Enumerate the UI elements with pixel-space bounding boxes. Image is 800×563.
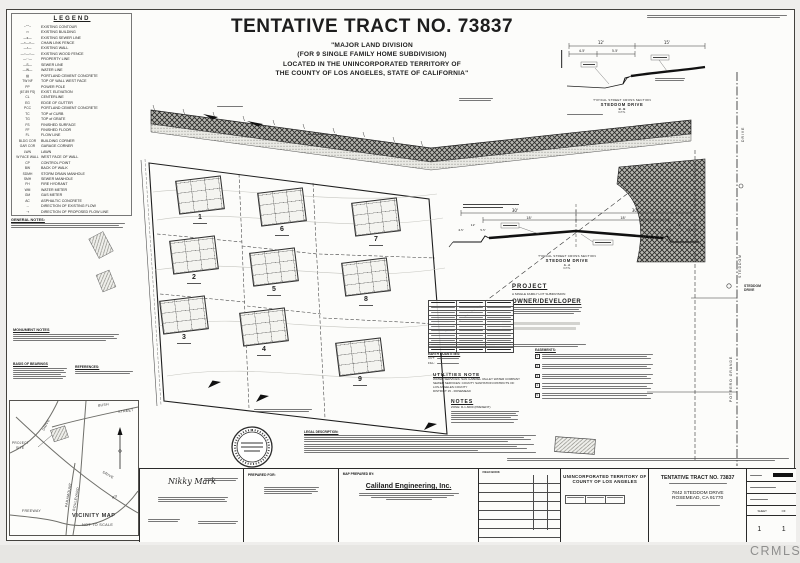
table-header-cell xyxy=(429,301,456,306)
illegible-text xyxy=(542,354,654,360)
building-footprint xyxy=(257,187,307,226)
lot-area-illegible xyxy=(353,385,367,386)
cross-section-b-caption: TYPICAL STREET CROSS SECTION STEDDOM DRI… xyxy=(557,98,687,114)
illegible-text xyxy=(386,499,432,500)
illegible-line xyxy=(11,223,125,224)
table-cell xyxy=(429,316,456,320)
table-body xyxy=(429,306,513,347)
illegible-line xyxy=(11,225,119,226)
illegible-line xyxy=(459,335,483,336)
table-cell xyxy=(429,330,456,334)
svg-text:18': 18' xyxy=(620,216,625,220)
street-label-drive: DRIVE xyxy=(741,127,745,142)
illegible-text xyxy=(750,499,768,500)
illegible-line xyxy=(542,366,648,367)
subtitle-line: LOCATED IN THE UNINCORPORATED TERRITORY … xyxy=(197,60,547,69)
illegible-line xyxy=(451,413,516,414)
illegible-line xyxy=(431,349,455,350)
subtitle-line: (FOR 9 SINGLE FAMILY HOME SUBDIVISION) xyxy=(197,50,547,59)
illegible-line xyxy=(13,374,61,375)
illegible-line xyxy=(254,411,309,412)
illegible-text xyxy=(567,114,603,116)
table-cell xyxy=(456,307,484,311)
table-row xyxy=(429,306,513,311)
lot-area-illegible xyxy=(187,283,201,284)
building-footprint xyxy=(335,337,385,376)
illegible-line xyxy=(451,419,518,420)
illegible-line xyxy=(307,134,337,135)
lot-number: 1 xyxy=(175,214,225,221)
legal-heading: LEGAL DESCRIPTION: xyxy=(304,430,536,434)
table-cell xyxy=(429,320,456,324)
mini-table xyxy=(565,495,625,504)
illegible-line xyxy=(542,354,654,355)
table-cell xyxy=(485,307,513,311)
illegible-line xyxy=(148,519,180,520)
street-label-line: DRIVE xyxy=(744,288,761,292)
table-cell xyxy=(456,330,484,334)
north-arrow xyxy=(118,427,123,469)
street-label-steddom-drive: STEDDOM DRIVE xyxy=(744,284,761,292)
illegible-line xyxy=(487,317,511,318)
illegible-line xyxy=(512,307,582,308)
illegible-line xyxy=(13,372,66,373)
illegible-text xyxy=(264,487,319,496)
illegible-line xyxy=(158,501,227,502)
svg-text:15': 15' xyxy=(664,40,670,45)
lot-number: 7 xyxy=(351,236,401,243)
illegible-line xyxy=(542,376,648,377)
table-cell xyxy=(485,311,513,315)
lot-area-illegible xyxy=(275,235,289,236)
general-notes: GENERAL NOTES: xyxy=(11,218,125,229)
illegible-line xyxy=(304,437,524,438)
illegible-line xyxy=(359,495,454,496)
easement-number: 5 xyxy=(535,393,540,398)
illegible-line xyxy=(13,336,114,337)
illegible-line xyxy=(198,523,236,524)
prepared-by-note xyxy=(254,409,312,413)
illegible-line xyxy=(459,340,483,341)
index-row xyxy=(747,469,796,482)
lot-area-illegible xyxy=(359,305,373,306)
sheet-title-block: TENTATIVE TRACT NO. 73837 "MAJOR LAND DI… xyxy=(197,16,547,78)
project-block: PROJECT A SINGLE FAMILY LOT SUBDIVISION … xyxy=(512,284,647,316)
project-site-label: PROJECT xyxy=(12,441,29,445)
references: REFERENCES: xyxy=(75,365,133,375)
easement-item: 5 xyxy=(535,393,653,399)
illegible-line xyxy=(542,358,651,359)
lot-5: 5 xyxy=(249,250,299,296)
caption-line: N.T.S. xyxy=(487,267,647,270)
illegible-text xyxy=(217,106,243,108)
references-heading: REFERENCES: xyxy=(75,365,133,369)
illegible-line xyxy=(13,340,106,341)
lot-number: 8 xyxy=(341,296,391,303)
steddom-drive-road xyxy=(151,105,691,170)
illegible-line xyxy=(431,330,455,331)
illegible-line xyxy=(431,312,455,313)
illegible-line xyxy=(204,480,236,481)
table-cell xyxy=(429,339,456,343)
illegible-text xyxy=(750,475,762,476)
illegible-line xyxy=(304,452,536,453)
illegible-line xyxy=(264,489,316,490)
illegible-line xyxy=(487,312,511,313)
illegible-line xyxy=(542,388,651,389)
illegible-line xyxy=(459,321,483,322)
illegible-line xyxy=(487,349,511,350)
table-cell xyxy=(456,311,484,315)
illegible-line xyxy=(75,373,130,374)
illegible-line xyxy=(304,446,517,447)
lot-area-illegible xyxy=(267,295,281,296)
easements-block: EASEMENTS: 1 2 3 4 5 xyxy=(535,348,653,403)
illegible-line xyxy=(542,398,651,399)
field-book-cell: FIELD BOOK xyxy=(479,469,561,542)
illegible-line xyxy=(487,326,511,327)
illegible-line xyxy=(431,307,455,308)
illegible-line xyxy=(451,422,514,423)
subtitle-line: "MAJOR LAND DIVISION xyxy=(197,41,547,50)
utilities-line: DISTRICT 15 - ROSEMEAD xyxy=(433,390,541,394)
notes-block: NOTES ZONE: R-1-6000 (PRESENT) xyxy=(451,399,529,424)
table-cell xyxy=(429,334,456,338)
table-header-cell xyxy=(456,301,484,306)
lot-3: 3 xyxy=(159,298,209,344)
illegible-line xyxy=(428,346,578,347)
illegible-line xyxy=(483,537,513,538)
illegible-line xyxy=(542,395,648,396)
column-divider xyxy=(547,475,548,530)
cross-section-a-caption: TYPICAL STREET CROSS SECTION STEDDOM DRI… xyxy=(487,254,647,270)
project-heading: PROJECT xyxy=(512,284,647,290)
illegible-line xyxy=(428,344,586,345)
illegible-line xyxy=(198,521,238,522)
illegible-line xyxy=(431,302,455,303)
illegible-line xyxy=(507,458,789,459)
illegible-text xyxy=(198,521,238,525)
svg-text:30': 30' xyxy=(512,208,518,213)
illegible-line xyxy=(158,499,225,500)
table-row xyxy=(429,319,513,324)
table-cell xyxy=(485,334,513,338)
table-row xyxy=(429,310,513,315)
monument-notes: MONUMENT NOTES xyxy=(13,328,119,342)
illegible-text xyxy=(359,493,459,496)
lot-6: 6 xyxy=(257,190,307,236)
svg-text:5.5': 5.5' xyxy=(480,228,486,232)
illegible-line xyxy=(567,497,584,498)
illegible-line xyxy=(542,383,654,384)
table-cell xyxy=(429,307,456,311)
svg-text:12': 12' xyxy=(471,223,476,227)
vicinity-map: BUSH STREET DRIVE DRIVE PARAMOUNT BOULEV… xyxy=(9,400,139,536)
illegible-line xyxy=(13,334,119,335)
table-cell xyxy=(456,339,484,343)
illegible-text xyxy=(304,435,536,453)
illegible-line xyxy=(647,15,787,16)
easements-heading: EASEMENTS: xyxy=(535,348,653,352)
lot-4: 4 xyxy=(239,310,289,356)
svg-text:18': 18' xyxy=(526,216,531,220)
illegible-line xyxy=(217,106,243,107)
illegible-line xyxy=(11,227,123,228)
illegible-line xyxy=(542,364,654,365)
illegible-line xyxy=(158,497,228,498)
index-row xyxy=(747,482,796,494)
vicinity-title: VICINITY MAP xyxy=(72,513,116,519)
illegible-text xyxy=(669,483,727,484)
illegible-line xyxy=(459,330,483,331)
easement-item: 2 xyxy=(535,364,653,370)
illegible-value xyxy=(437,363,459,364)
signature-cell: Nikky Mark xyxy=(140,469,244,542)
illegible-line xyxy=(459,312,483,313)
lot-9: 9 xyxy=(335,340,385,386)
of-label: OF xyxy=(782,509,786,513)
svg-text:5.5': 5.5' xyxy=(666,228,672,232)
illegible-line xyxy=(304,450,478,451)
illegible-line xyxy=(487,321,511,322)
building-footprint xyxy=(175,175,225,214)
illegible-line xyxy=(487,335,511,336)
svg-text:4.5': 4.5' xyxy=(579,49,585,53)
illegible-text xyxy=(542,383,654,389)
table-cell xyxy=(456,334,484,338)
illegible-line xyxy=(542,393,654,394)
lot-8: 8 xyxy=(341,260,391,306)
illegible-line xyxy=(487,330,511,331)
caption-line: N.T.S. xyxy=(557,111,687,114)
illegible-line xyxy=(304,444,534,445)
easement-number: 2 xyxy=(535,364,540,369)
illegible-line xyxy=(542,386,648,387)
easement-number: 1 xyxy=(535,354,540,359)
lot-area-illegible xyxy=(257,355,271,356)
illegible-text xyxy=(75,371,133,374)
mini-cell xyxy=(566,496,585,503)
illegible-line xyxy=(13,368,67,369)
illegible-line xyxy=(254,409,312,410)
easement-number: 4 xyxy=(535,383,540,388)
illegible-line xyxy=(431,317,455,318)
street-label-freeway: FREEWAY xyxy=(22,509,41,513)
illegible-text xyxy=(676,505,720,506)
illegible-text xyxy=(647,15,787,19)
sheet-number: 1 xyxy=(757,526,761,533)
filled-value xyxy=(773,473,793,477)
illegible-line xyxy=(487,302,511,303)
lot-7: 7 xyxy=(351,200,401,246)
surveyor-stamp xyxy=(232,427,272,467)
plan-sheet: LEGEND ~⌒~ EXISTING CONTOUR ▭ EXISTING B… xyxy=(6,9,795,541)
illegible-line xyxy=(264,487,319,488)
flow-arrows xyxy=(208,381,437,431)
subtitle-line: THE COUNTY OF LOS ANGELES, STATE OF CALI… xyxy=(197,69,547,78)
easement-items: 1 2 3 4 5 xyxy=(535,354,653,400)
lot-area-illegible xyxy=(177,343,191,344)
table-cell xyxy=(429,311,456,315)
fill-label: FILL: xyxy=(428,362,435,366)
easement-item: 1 xyxy=(535,354,653,360)
illegible-line xyxy=(304,441,508,442)
illegible-line xyxy=(542,378,651,379)
lot-number: 3 xyxy=(159,334,209,341)
illegible-line xyxy=(264,491,318,492)
sheet-numbers-row: 1 1 xyxy=(747,516,796,542)
illegible-line xyxy=(431,335,455,336)
illegible-line xyxy=(431,326,455,327)
illegible-line xyxy=(542,374,654,375)
cross-section-a-diagram: 30' 30' 18' 18' 12' 4.5' 5.5' 12' 4.5' 5… xyxy=(443,196,709,252)
project-desc: A SINGLE FAMILY LOT SUBDIVISION xyxy=(512,292,647,296)
prepared-for-cell: PREPARED FOR: xyxy=(244,469,339,542)
building-footprint xyxy=(351,197,401,236)
illegible-text xyxy=(451,411,519,423)
illegible-text xyxy=(204,478,238,482)
illegible-text xyxy=(542,393,654,399)
table-cell xyxy=(456,320,484,324)
street-label-steddom: STEDDOM xyxy=(738,254,742,278)
table-cell xyxy=(485,348,513,352)
illegible-line xyxy=(459,307,483,308)
illegible-line xyxy=(431,340,455,341)
table-row xyxy=(429,324,513,329)
illegible-line xyxy=(459,302,483,303)
table-header-row xyxy=(429,301,513,306)
illegible-line xyxy=(487,340,511,341)
utilities-note: UTILITIES NOTE WATER SERVICES: SAN GABRI… xyxy=(433,372,541,394)
illegible-text xyxy=(307,134,337,136)
table-row xyxy=(429,338,513,343)
title-block: Nikky Mark PREPARED FOR: MAP PREPARED BY… xyxy=(139,468,796,542)
illegible-line xyxy=(647,17,780,18)
lot-number: 5 xyxy=(249,286,299,293)
illegible-line xyxy=(304,448,527,449)
sheet-total: 1 xyxy=(782,526,786,533)
illegible-text xyxy=(542,374,654,380)
illegible-text xyxy=(459,98,493,102)
table-cell xyxy=(485,330,513,334)
lot-area-illegible xyxy=(193,223,207,224)
illegible-text xyxy=(158,497,228,503)
firm-name: Caliland Engineering, Inc. xyxy=(339,483,479,490)
illegible-text xyxy=(13,368,67,380)
svg-text:12': 12' xyxy=(677,223,682,227)
illegible-line xyxy=(507,460,775,461)
illegible-text xyxy=(13,334,119,341)
illegible-line xyxy=(459,349,483,350)
lot-number: 4 xyxy=(239,346,289,353)
map-prepared-by-cell: MAP PREPARED BY: Caliland Engineering, I… xyxy=(339,469,480,542)
sheet-of-row: SHEET OF xyxy=(747,506,796,516)
table-cell xyxy=(485,325,513,329)
lot-number: 2 xyxy=(169,274,219,281)
table-cell xyxy=(429,325,456,329)
illegible-text xyxy=(750,487,776,488)
field-book-label: FIELD BOOK xyxy=(482,470,499,474)
illegible-text xyxy=(371,497,447,498)
basis-heading: BASIS OF BEARINGS xyxy=(13,362,67,366)
cross-section-b-diagram: 15' 12' 4.5' 5.5' xyxy=(539,34,707,96)
illegible-line xyxy=(13,378,63,379)
illegible-line xyxy=(487,307,511,308)
illegible-text xyxy=(483,537,513,539)
table-header-cell xyxy=(485,301,513,306)
sheet-title: TENTATIVE TRACT NO. 73837 xyxy=(197,16,547,38)
scanned-tract-map-page: LEGEND ~⌒~ EXISTING CONTOUR ▭ EXISTING B… xyxy=(0,0,800,563)
illegible-text xyxy=(148,519,180,523)
illegible-line xyxy=(204,478,238,479)
sheet-index-cell: SHEET OF 1 1 xyxy=(747,469,796,542)
illegible-line xyxy=(459,100,491,101)
illegible-line xyxy=(512,313,574,314)
illegible-line xyxy=(607,497,624,498)
illegible-line xyxy=(386,499,432,500)
illegible-line xyxy=(459,317,483,318)
svg-text:4.5': 4.5' xyxy=(688,228,694,232)
vicinity-scale: NOT TO SCALE xyxy=(82,523,113,527)
illegible-text xyxy=(512,307,582,314)
territory-cell: UNINCORPORATED TERRITORY OF COUNTY OF LO… xyxy=(561,469,649,542)
lot-2: 2 xyxy=(169,238,219,284)
table-cell xyxy=(485,339,513,343)
illegible-line xyxy=(512,309,579,310)
illegible-line xyxy=(359,493,459,494)
easement-item: 3 xyxy=(535,374,653,380)
illegible-line xyxy=(371,497,447,498)
illegible-value xyxy=(437,358,459,359)
earth-heading: EARTH QUANTITIES: xyxy=(428,352,498,356)
building-footprint xyxy=(239,307,289,346)
svg-text:30': 30' xyxy=(632,208,638,213)
tract-address-cell: TENTATIVE TRACT NO. 73837 7842 STEDDOM D… xyxy=(649,469,747,542)
table-cell xyxy=(456,316,484,320)
table-cell xyxy=(485,316,513,320)
owner-heading: OWNER/DEVELOPER xyxy=(512,299,647,305)
sheet-label: SHEET xyxy=(757,509,766,513)
illegible-line xyxy=(451,415,518,416)
illegible-text xyxy=(542,364,654,370)
building-footprint xyxy=(159,295,209,334)
index-row xyxy=(747,494,796,506)
svg-text:4.5': 4.5' xyxy=(458,228,464,232)
general-notes-heading: GENERAL NOTES: xyxy=(11,218,125,222)
building-footprint xyxy=(169,235,219,274)
mini-cell xyxy=(585,496,605,503)
project-site-label: SITE xyxy=(16,446,24,450)
table-cell xyxy=(456,325,484,329)
notes-line: ZONE: R-1-6000 (PRESENT) xyxy=(451,406,529,410)
illegible-line xyxy=(148,521,178,522)
illegible-line xyxy=(304,435,536,436)
page-margin xyxy=(0,545,800,563)
basis-of-bearings: BASIS OF BEARINGS xyxy=(13,362,67,380)
illegible-line xyxy=(459,326,483,327)
street-label-potrero-grande: POTRERO GRANDE xyxy=(729,356,733,402)
mini-cell xyxy=(605,496,625,503)
illegible-line xyxy=(13,338,117,339)
lot-1: 1 xyxy=(175,178,225,224)
illegible-line xyxy=(459,98,493,99)
illegible-line xyxy=(451,411,519,412)
illegible-line xyxy=(264,493,312,494)
prepared-for-label: PREPARED FOR: xyxy=(248,473,276,477)
lot-area-illegible xyxy=(369,245,383,246)
column-divider xyxy=(533,475,534,530)
illegible-line xyxy=(512,311,581,312)
